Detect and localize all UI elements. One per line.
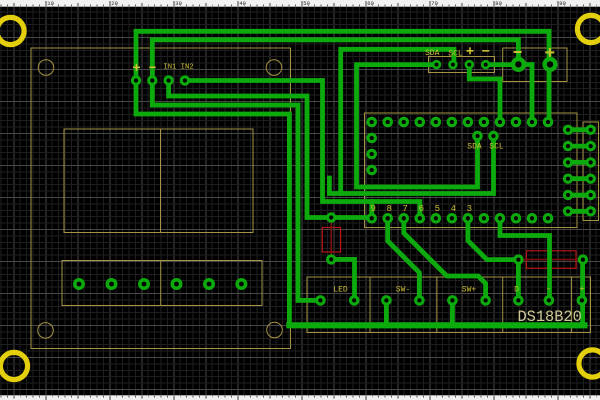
svg-text:SW+: SW+	[462, 286, 477, 295]
svg-text:SDA: SDA	[467, 143, 482, 152]
svg-text:8: 8	[387, 204, 392, 214]
svg-text:7: 7	[403, 204, 408, 214]
svg-text:20: 20	[111, 0, 118, 7]
svg-text:IN1 IN2: IN1 IN2	[163, 64, 193, 72]
svg-text:SCL: SCL	[448, 50, 463, 59]
svg-text:6: 6	[419, 204, 424, 214]
svg-text:SCL: SCL	[489, 143, 504, 152]
svg-text:-: -	[546, 285, 551, 295]
svg-text:4: 4	[451, 204, 456, 214]
svg-text:10: 10	[47, 0, 54, 7]
svg-text:5: 5	[435, 204, 440, 214]
svg-text:40: 40	[239, 0, 246, 7]
svg-text:9: 9	[370, 204, 375, 214]
svg-text:3: 3	[467, 204, 472, 214]
svg-text:80: 80	[495, 0, 502, 7]
svg-text:60: 60	[367, 0, 374, 7]
svg-text:SW-: SW-	[396, 286, 410, 295]
svg-text:30: 30	[175, 0, 182, 7]
svg-text:70: 70	[431, 0, 438, 7]
svg-text:+: +	[579, 285, 584, 295]
svg-text:90: 90	[559, 0, 566, 7]
svg-text:D: D	[514, 286, 519, 295]
svg-text:SDA: SDA	[425, 49, 440, 58]
svg-text:LED: LED	[333, 286, 348, 295]
svg-text:DS18B20: DS18B20	[518, 308, 582, 326]
svg-text:50: 50	[303, 0, 310, 7]
